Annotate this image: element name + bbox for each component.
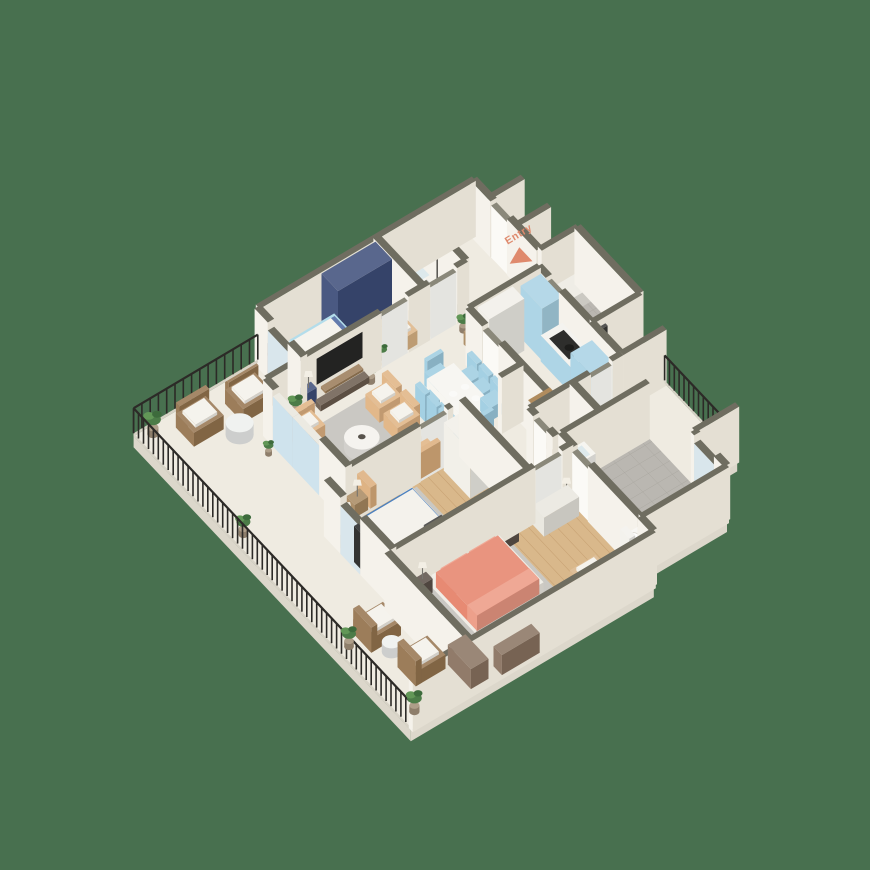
floor-plan-viewport: Entry (0, 0, 870, 870)
coffee-table-deco (358, 434, 366, 439)
plant-terrace-4-pot (344, 638, 354, 651)
plate-2 (461, 384, 470, 390)
plate-3 (472, 395, 481, 401)
burner-b (565, 344, 575, 351)
terrace-table-a (226, 413, 254, 444)
wall-44 (498, 361, 524, 434)
plate-5 (449, 391, 458, 397)
floor-plan-svg: Entry (0, 0, 870, 870)
plant-terrace-5-pot (409, 702, 419, 715)
plant-terrace-6-pot (265, 448, 272, 457)
